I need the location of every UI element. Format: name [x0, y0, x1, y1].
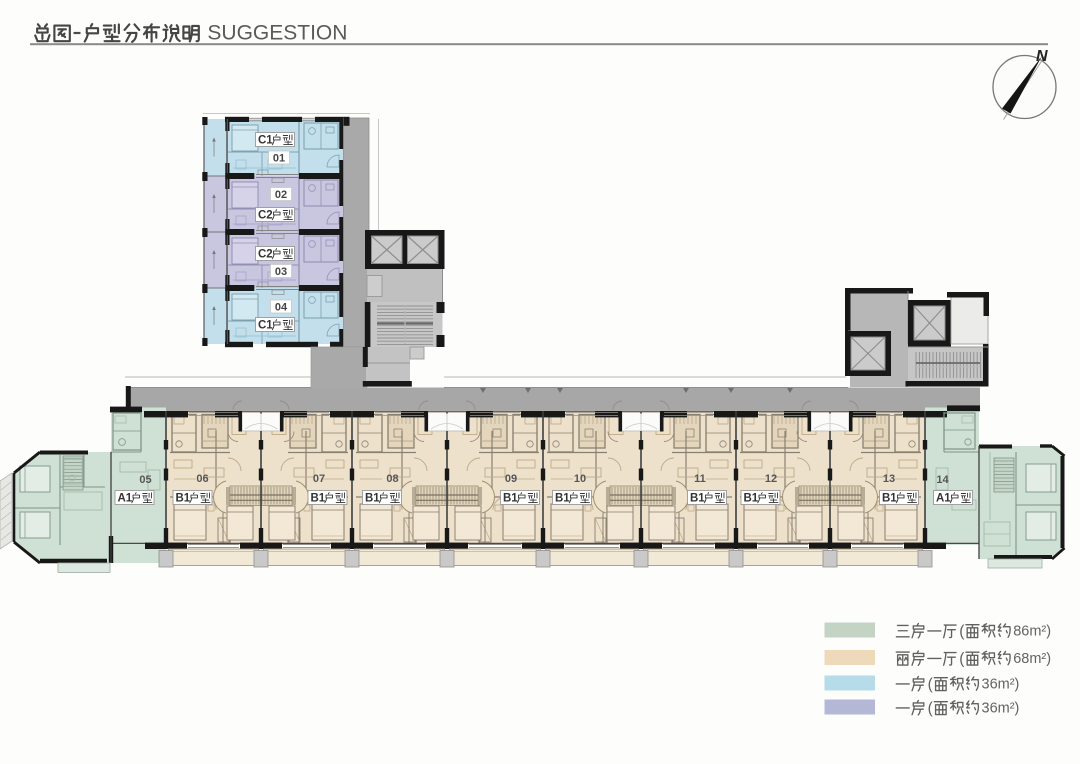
svg-text:09: 09: [505, 473, 517, 485]
svg-text:N: N: [1036, 48, 1048, 65]
svg-text:07: 07: [313, 473, 325, 485]
svg-text:36m²): 36m²): [982, 677, 1020, 693]
svg-text:14: 14: [936, 474, 949, 486]
svg-text:36m²): 36m²): [982, 701, 1020, 717]
svg-text:C2: C2: [258, 249, 273, 261]
svg-text:B1: B1: [744, 493, 759, 505]
svg-text:B1: B1: [690, 493, 705, 505]
svg-text:B1: B1: [365, 493, 380, 505]
svg-text:B1: B1: [311, 493, 326, 505]
svg-text:06: 06: [196, 473, 208, 485]
svg-text:A1: A1: [936, 493, 951, 505]
svg-text:(: (: [928, 676, 934, 693]
svg-text:SUGGESTION: SUGGESTION: [207, 22, 347, 45]
svg-text:B1: B1: [176, 493, 191, 505]
svg-text:C1: C1: [258, 320, 273, 332]
svg-text:B1: B1: [503, 493, 518, 505]
svg-text:02: 02: [275, 189, 287, 201]
svg-text:10: 10: [574, 473, 586, 485]
svg-text:68m²): 68m²): [1013, 651, 1051, 667]
svg-text:04: 04: [275, 302, 288, 314]
svg-text:(: (: [959, 651, 965, 668]
svg-text:03: 03: [275, 266, 287, 278]
svg-text:01: 01: [273, 153, 285, 165]
svg-text:11: 11: [694, 473, 706, 485]
svg-text:C1: C1: [258, 135, 273, 147]
svg-text:05: 05: [139, 474, 151, 486]
svg-text:A1: A1: [118, 493, 133, 505]
svg-text:C2: C2: [258, 210, 273, 222]
svg-text:(: (: [959, 623, 965, 640]
svg-text:(: (: [928, 700, 934, 717]
svg-text:B1: B1: [555, 493, 570, 505]
svg-text:12: 12: [765, 473, 777, 485]
svg-text:B1: B1: [882, 493, 897, 505]
svg-text:08: 08: [386, 473, 398, 485]
svg-text:13: 13: [883, 473, 895, 485]
svg-text:86m²): 86m²): [1013, 624, 1051, 640]
